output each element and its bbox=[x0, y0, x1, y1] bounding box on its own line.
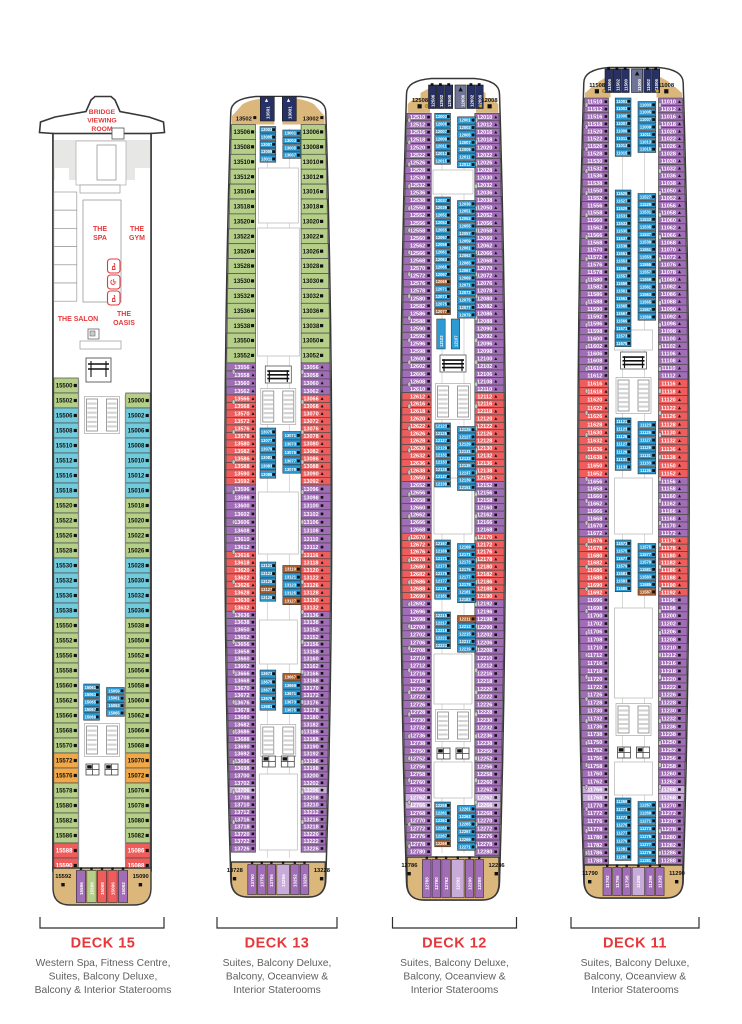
svg-text:11252: 11252 bbox=[661, 748, 676, 754]
svg-text:11778: 11778 bbox=[587, 827, 602, 833]
svg-text:11587: 11587 bbox=[640, 589, 652, 594]
svg-text:15016: 15016 bbox=[128, 489, 145, 495]
svg-text:12628: 12628 bbox=[410, 439, 425, 445]
svg-text:13085: 13085 bbox=[261, 472, 273, 477]
svg-text:15061: 15061 bbox=[108, 696, 120, 701]
svg-text:15068: 15068 bbox=[128, 744, 145, 750]
svg-text:12127: 12127 bbox=[459, 434, 471, 439]
svg-text:13018: 13018 bbox=[303, 205, 320, 211]
svg-text:12202: 12202 bbox=[477, 633, 492, 639]
svg-text:13528: 13528 bbox=[234, 264, 251, 270]
svg-text:12182: 12182 bbox=[477, 572, 492, 578]
svg-text:11056: 11056 bbox=[661, 203, 676, 209]
svg-text:12160: 12160 bbox=[477, 505, 492, 511]
svg-text:11796: 11796 bbox=[615, 875, 620, 888]
svg-text:11068: 11068 bbox=[661, 240, 676, 246]
svg-text:12722: 12722 bbox=[410, 695, 425, 701]
svg-text:11790: 11790 bbox=[582, 871, 598, 877]
svg-text:12020: 12020 bbox=[477, 145, 492, 151]
svg-text:11656: 11656 bbox=[587, 479, 602, 485]
svg-text:11628: 11628 bbox=[587, 422, 602, 428]
svg-text:11032: 11032 bbox=[661, 166, 676, 172]
svg-text:13568: 13568 bbox=[234, 404, 249, 410]
svg-text:13030: 13030 bbox=[303, 279, 320, 285]
svg-text:15056: 15056 bbox=[128, 669, 145, 675]
svg-text:13009: 13009 bbox=[261, 149, 273, 154]
svg-text:11522: 11522 bbox=[587, 137, 602, 143]
svg-text:12009: 12009 bbox=[436, 136, 448, 141]
svg-text:13728: 13728 bbox=[227, 868, 244, 874]
svg-text:12626: 12626 bbox=[410, 431, 425, 437]
svg-text:15036: 15036 bbox=[128, 609, 145, 615]
svg-text:13092: 13092 bbox=[303, 479, 318, 485]
svg-text:12532: 12532 bbox=[410, 183, 425, 189]
svg-text:11022: 11022 bbox=[661, 137, 676, 143]
svg-text:15086: 15086 bbox=[128, 849, 145, 855]
svg-text:11009: 11009 bbox=[616, 128, 628, 133]
svg-text:12780: 12780 bbox=[410, 850, 425, 856]
svg-text:12236: 12236 bbox=[477, 734, 492, 740]
svg-text:13666: 13666 bbox=[234, 671, 249, 677]
svg-text:12016: 12016 bbox=[477, 130, 492, 136]
svg-text:12012: 12012 bbox=[477, 123, 492, 129]
svg-text:15576: 15576 bbox=[56, 774, 73, 780]
svg-text:12170: 12170 bbox=[477, 535, 492, 541]
svg-text:THE: THE bbox=[117, 311, 131, 318]
svg-text:12261: 12261 bbox=[459, 806, 471, 811]
svg-text:11561: 11561 bbox=[616, 288, 628, 293]
svg-text:12088: 12088 bbox=[477, 319, 492, 325]
svg-text:Balcony & Interior Staterooms: Balcony & Interior Staterooms bbox=[35, 985, 172, 996]
svg-text:11012: 11012 bbox=[661, 107, 676, 113]
svg-text:12213: 12213 bbox=[459, 624, 471, 629]
svg-text:11121: 11121 bbox=[616, 419, 628, 424]
svg-text:12057: 12057 bbox=[459, 231, 471, 236]
svg-text:13156: 13156 bbox=[303, 642, 318, 648]
svg-text:11123: 11123 bbox=[616, 427, 628, 432]
svg-text:11528: 11528 bbox=[587, 152, 602, 158]
svg-text:11002: 11002 bbox=[646, 78, 651, 91]
svg-text:13070: 13070 bbox=[303, 412, 318, 418]
svg-text:11162: 11162 bbox=[661, 502, 676, 508]
svg-text:12188: 12188 bbox=[477, 587, 492, 593]
svg-text:12133: 12133 bbox=[436, 460, 448, 465]
svg-text:13066: 13066 bbox=[303, 397, 318, 403]
svg-text:11202: 11202 bbox=[661, 622, 676, 628]
svg-text:11776: 11776 bbox=[587, 819, 602, 825]
svg-text:11120: 11120 bbox=[661, 398, 676, 404]
svg-text:13618: 13618 bbox=[234, 561, 249, 567]
svg-text:13626: 13626 bbox=[234, 583, 249, 589]
svg-text:11116: 11116 bbox=[661, 381, 675, 387]
svg-text:11527: 11527 bbox=[616, 198, 628, 203]
svg-text:13208: 13208 bbox=[303, 795, 318, 801]
svg-text:BRIDGE: BRIDGE bbox=[89, 109, 116, 116]
svg-text:11272: 11272 bbox=[661, 811, 676, 817]
svg-text:12516: 12516 bbox=[410, 130, 425, 136]
svg-text:12052: 12052 bbox=[477, 213, 492, 219]
svg-text:12752: 12752 bbox=[410, 757, 425, 763]
svg-text:15020: 15020 bbox=[128, 519, 145, 525]
svg-text:12102: 12102 bbox=[477, 364, 492, 370]
svg-text:11166: 11166 bbox=[661, 509, 676, 515]
svg-text:11070: 11070 bbox=[661, 248, 676, 254]
svg-text:11196: 11196 bbox=[661, 598, 676, 604]
svg-text:12252: 12252 bbox=[477, 757, 492, 763]
svg-text:11273: 11273 bbox=[616, 815, 628, 820]
svg-text:11168: 11168 bbox=[661, 516, 676, 522]
svg-text:11698: 11698 bbox=[587, 606, 602, 612]
svg-text:13198: 13198 bbox=[303, 766, 318, 772]
svg-text:13676: 13676 bbox=[234, 701, 249, 707]
svg-text:11131: 11131 bbox=[640, 453, 652, 458]
svg-text:13112: 13112 bbox=[304, 545, 319, 551]
svg-text:13681: 13681 bbox=[261, 704, 273, 709]
svg-text:13520: 13520 bbox=[234, 220, 251, 226]
svg-text:11090: 11090 bbox=[661, 307, 676, 313]
svg-text:11565: 11565 bbox=[616, 303, 628, 308]
svg-text:13088: 13088 bbox=[303, 464, 318, 470]
svg-text:11712: 11712 bbox=[587, 653, 602, 659]
svg-text:11276: 11276 bbox=[661, 819, 676, 825]
svg-text:12171: 12171 bbox=[436, 556, 448, 561]
svg-text:12596: 12596 bbox=[410, 342, 425, 348]
svg-text:12738: 12738 bbox=[410, 741, 425, 747]
svg-text:13056: 13056 bbox=[303, 365, 318, 371]
svg-text:12698: 12698 bbox=[410, 617, 425, 623]
svg-text:11533: 11533 bbox=[616, 221, 628, 226]
svg-text:12096: 12096 bbox=[477, 342, 492, 348]
svg-text:11577: 11577 bbox=[616, 556, 628, 561]
svg-text:13592: 13592 bbox=[234, 479, 249, 485]
svg-text:15072: 15072 bbox=[128, 774, 145, 780]
svg-text:13698: 13698 bbox=[234, 766, 249, 772]
svg-text:11228: 11228 bbox=[661, 701, 676, 707]
svg-text:11538: 11538 bbox=[587, 181, 602, 187]
svg-text:12792: 12792 bbox=[444, 877, 449, 890]
svg-text:12536: 12536 bbox=[410, 191, 425, 197]
svg-text:12071: 12071 bbox=[459, 283, 471, 288]
svg-text:11530: 11530 bbox=[587, 159, 602, 165]
svg-text:11500: 11500 bbox=[624, 78, 629, 91]
svg-text:13669: 13669 bbox=[285, 683, 297, 688]
svg-text:11782: 11782 bbox=[587, 843, 602, 849]
svg-text:12177: 12177 bbox=[436, 578, 448, 583]
svg-text:13126: 13126 bbox=[303, 583, 318, 589]
svg-text:13206: 13206 bbox=[303, 788, 318, 794]
svg-text:12058: 12058 bbox=[477, 228, 492, 234]
svg-text:15092: 15092 bbox=[121, 882, 126, 895]
svg-text:13677: 13677 bbox=[261, 688, 273, 693]
svg-text:13518: 13518 bbox=[234, 205, 251, 211]
svg-text:11277: 11277 bbox=[640, 842, 652, 847]
svg-text:13572: 13572 bbox=[234, 419, 249, 425]
svg-text:12578: 12578 bbox=[410, 289, 425, 295]
svg-text:13675: 13675 bbox=[261, 679, 273, 684]
svg-text:Balcony, Oceanview &: Balcony, Oceanview & bbox=[584, 972, 686, 983]
svg-text:12586: 12586 bbox=[410, 311, 425, 317]
svg-text:12075: 12075 bbox=[436, 301, 448, 306]
svg-text:12005: 12005 bbox=[459, 132, 471, 137]
svg-text:13007: 13007 bbox=[261, 142, 273, 147]
svg-text:15078: 15078 bbox=[128, 804, 145, 810]
svg-text:12069: 12069 bbox=[459, 275, 471, 280]
svg-text:12660: 12660 bbox=[410, 505, 425, 511]
svg-text:12668: 12668 bbox=[410, 528, 425, 534]
svg-text:11535: 11535 bbox=[640, 224, 652, 229]
svg-text:11758: 11758 bbox=[587, 764, 602, 770]
svg-text:11508: 11508 bbox=[589, 83, 606, 89]
svg-text:13558: 13558 bbox=[234, 373, 249, 379]
svg-text:15059: 15059 bbox=[108, 688, 120, 693]
svg-text:12090: 12090 bbox=[477, 327, 492, 333]
svg-text:15502: 15502 bbox=[56, 399, 73, 405]
svg-text:11226: 11226 bbox=[661, 693, 676, 699]
svg-text:15520: 15520 bbox=[56, 504, 73, 510]
svg-text:11030: 11030 bbox=[661, 159, 676, 165]
svg-text:13530: 13530 bbox=[234, 279, 251, 285]
svg-text:11577: 11577 bbox=[640, 552, 652, 557]
svg-text:11268: 11268 bbox=[661, 795, 676, 801]
svg-text:11726: 11726 bbox=[587, 693, 602, 699]
svg-text:11688: 11688 bbox=[587, 576, 602, 582]
svg-text:12576: 12576 bbox=[410, 281, 425, 287]
svg-text:11529: 11529 bbox=[616, 206, 628, 211]
svg-text:13077: 13077 bbox=[285, 458, 297, 463]
svg-text:11096: 11096 bbox=[661, 322, 676, 328]
svg-text:11236: 11236 bbox=[661, 724, 676, 730]
svg-text:11572: 11572 bbox=[587, 255, 602, 261]
svg-text:13130: 13130 bbox=[303, 598, 318, 604]
svg-text:11736: 11736 bbox=[587, 724, 602, 730]
svg-text:15012: 15012 bbox=[128, 474, 145, 480]
svg-text:13180: 13180 bbox=[303, 715, 318, 721]
svg-text:11588: 11588 bbox=[587, 300, 602, 306]
svg-text:12662: 12662 bbox=[410, 513, 425, 519]
svg-text:12762: 12762 bbox=[410, 796, 425, 802]
svg-text:12037: 12037 bbox=[436, 198, 448, 203]
svg-text:11122: 11122 bbox=[661, 406, 676, 412]
svg-text:11128: 11128 bbox=[661, 422, 676, 428]
svg-text:12015: 12015 bbox=[436, 159, 448, 164]
svg-text:13671: 13671 bbox=[285, 691, 297, 696]
svg-text:12118: 12118 bbox=[477, 409, 492, 415]
svg-text:13060: 13060 bbox=[303, 381, 318, 387]
svg-text:12208: 12208 bbox=[477, 648, 492, 654]
svg-text:12686: 12686 bbox=[410, 579, 425, 585]
svg-text:13726: 13726 bbox=[234, 847, 249, 853]
svg-text:12530: 12530 bbox=[410, 176, 425, 182]
svg-text:11518: 11518 bbox=[587, 122, 602, 128]
svg-text:13580: 13580 bbox=[234, 442, 249, 448]
svg-text:11275: 11275 bbox=[616, 823, 628, 828]
svg-text:11281: 11281 bbox=[640, 858, 652, 863]
svg-text:11622: 11622 bbox=[587, 406, 602, 412]
svg-text:12078: 12078 bbox=[477, 289, 492, 295]
svg-text:11270: 11270 bbox=[661, 803, 676, 809]
svg-text:11716: 11716 bbox=[587, 661, 602, 667]
svg-text:11160: 11160 bbox=[661, 494, 676, 500]
svg-text:15536: 15536 bbox=[56, 594, 73, 600]
svg-text:11582: 11582 bbox=[587, 285, 602, 291]
svg-text:13510: 13510 bbox=[234, 160, 251, 166]
svg-text:12708: 12708 bbox=[410, 648, 425, 654]
svg-text:13176: 13176 bbox=[303, 701, 318, 707]
svg-text:13252: 13252 bbox=[293, 874, 298, 887]
svg-text:12558: 12558 bbox=[410, 228, 425, 234]
svg-text:13168: 13168 bbox=[303, 679, 318, 685]
svg-text:13077: 13077 bbox=[261, 438, 273, 443]
svg-text:11127: 11127 bbox=[640, 438, 652, 443]
svg-text:11537: 11537 bbox=[616, 236, 628, 241]
svg-text:11573: 11573 bbox=[616, 333, 628, 338]
svg-text:11670: 11670 bbox=[587, 524, 602, 530]
svg-text:13132: 13132 bbox=[303, 606, 318, 612]
svg-text:11660: 11660 bbox=[587, 494, 602, 500]
svg-text:11662: 11662 bbox=[587, 502, 602, 508]
svg-text:12290: 12290 bbox=[467, 877, 472, 890]
svg-text:11126: 11126 bbox=[661, 414, 676, 420]
svg-text:13190: 13190 bbox=[303, 744, 318, 750]
svg-text:12181: 12181 bbox=[436, 593, 448, 598]
svg-text:13576: 13576 bbox=[234, 427, 249, 433]
svg-text:Interior Staterooms: Interior Staterooms bbox=[411, 985, 499, 996]
svg-text:15518: 15518 bbox=[56, 489, 73, 495]
svg-text:13116: 13116 bbox=[304, 553, 319, 559]
svg-text:13188: 13188 bbox=[303, 737, 318, 743]
svg-text:12038: 12038 bbox=[477, 198, 492, 204]
svg-text:12710: 12710 bbox=[410, 656, 425, 662]
svg-text:12215: 12215 bbox=[459, 631, 471, 636]
svg-text:11583: 11583 bbox=[616, 578, 628, 583]
svg-text:11008: 11008 bbox=[658, 83, 675, 89]
svg-text:12760: 12760 bbox=[410, 780, 425, 786]
svg-text:11559: 11559 bbox=[616, 281, 628, 286]
svg-text:12139: 12139 bbox=[459, 478, 471, 483]
svg-text:12100: 12100 bbox=[477, 357, 492, 363]
svg-text:Suites, Balcony Deluxe,: Suites, Balcony Deluxe, bbox=[400, 958, 509, 969]
svg-text:15098: 15098 bbox=[100, 882, 105, 895]
svg-text:12258: 12258 bbox=[477, 772, 492, 778]
svg-text:13512: 13512 bbox=[234, 175, 251, 181]
svg-text:11557: 11557 bbox=[640, 269, 652, 274]
svg-text:11569: 11569 bbox=[640, 314, 652, 319]
svg-text:13022: 13022 bbox=[303, 234, 320, 240]
svg-text:12059: 12059 bbox=[459, 238, 471, 243]
svg-text:11728: 11728 bbox=[587, 701, 602, 707]
svg-text:11198: 11198 bbox=[661, 606, 676, 612]
svg-text:12173: 12173 bbox=[459, 559, 471, 564]
svg-text:GYM: GYM bbox=[129, 235, 145, 242]
svg-text:13002: 13002 bbox=[303, 117, 319, 123]
svg-text:11571: 11571 bbox=[616, 326, 628, 331]
svg-text:12211: 12211 bbox=[459, 616, 471, 621]
svg-text:11557: 11557 bbox=[616, 273, 628, 278]
svg-text:12003: 12003 bbox=[436, 114, 448, 119]
svg-text:12562: 12562 bbox=[410, 243, 425, 249]
svg-text:11585: 11585 bbox=[616, 586, 628, 591]
svg-text:11788: 11788 bbox=[587, 859, 602, 865]
svg-text:12758: 12758 bbox=[410, 772, 425, 778]
svg-text:15000: 15000 bbox=[128, 399, 145, 405]
svg-text:12222: 12222 bbox=[477, 695, 492, 701]
svg-text:11210: 11210 bbox=[661, 645, 676, 651]
svg-text:11102: 11102 bbox=[661, 344, 676, 350]
svg-text:15592: 15592 bbox=[55, 874, 71, 880]
svg-text:12512: 12512 bbox=[410, 123, 425, 129]
svg-text:13152: 13152 bbox=[303, 635, 318, 641]
svg-text:11280: 11280 bbox=[661, 835, 676, 841]
svg-text:13538: 13538 bbox=[234, 324, 251, 330]
svg-text:12706: 12706 bbox=[410, 641, 425, 647]
svg-text:13620: 13620 bbox=[234, 568, 249, 574]
svg-text:13005: 13005 bbox=[285, 145, 297, 150]
svg-text:VIEWING: VIEWING bbox=[87, 118, 116, 125]
svg-text:11575: 11575 bbox=[640, 544, 652, 549]
svg-text:11539: 11539 bbox=[640, 239, 652, 244]
svg-text:11678: 11678 bbox=[587, 546, 602, 552]
svg-text:11531: 11531 bbox=[640, 209, 652, 214]
svg-text:13202: 13202 bbox=[303, 781, 318, 787]
svg-text:12718: 12718 bbox=[410, 679, 425, 685]
svg-text:11638: 11638 bbox=[587, 455, 602, 461]
svg-text:12610: 12610 bbox=[410, 387, 425, 393]
svg-text:15061: 15061 bbox=[85, 685, 97, 690]
svg-text:12750: 12750 bbox=[410, 749, 425, 755]
svg-text:13673: 13673 bbox=[285, 699, 297, 704]
svg-text:13119: 13119 bbox=[285, 567, 297, 572]
svg-text:11527: 11527 bbox=[640, 194, 652, 199]
svg-text:13612: 13612 bbox=[234, 545, 249, 551]
svg-text:12256: 12256 bbox=[477, 765, 492, 771]
svg-text:11586: 11586 bbox=[587, 292, 602, 298]
svg-text:11076: 11076 bbox=[661, 263, 676, 269]
svg-text:12612: 12612 bbox=[410, 394, 425, 400]
svg-text:11696: 11696 bbox=[587, 598, 602, 604]
svg-text:11250: 11250 bbox=[661, 740, 676, 746]
svg-text:12226: 12226 bbox=[477, 703, 492, 709]
svg-text:12276: 12276 bbox=[477, 834, 492, 840]
svg-text:15060: 15060 bbox=[128, 699, 145, 705]
svg-text:13001: 13001 bbox=[288, 106, 293, 119]
svg-text:12766: 12766 bbox=[410, 803, 425, 809]
svg-text:12510: 12510 bbox=[410, 115, 425, 121]
svg-text:13556: 13556 bbox=[234, 365, 249, 371]
svg-text:12131: 12131 bbox=[459, 449, 471, 454]
svg-text:13138: 13138 bbox=[303, 620, 318, 626]
svg-text:11526: 11526 bbox=[587, 144, 602, 150]
svg-text:11650: 11650 bbox=[587, 463, 602, 469]
svg-text:12770: 12770 bbox=[410, 819, 425, 825]
svg-text:13588: 13588 bbox=[234, 464, 249, 470]
svg-text:15062: 15062 bbox=[128, 714, 145, 720]
svg-text:13016: 13016 bbox=[303, 190, 320, 196]
svg-text:13652: 13652 bbox=[234, 635, 249, 641]
svg-text:12001: 12001 bbox=[459, 118, 471, 123]
svg-text:12039: 12039 bbox=[459, 201, 471, 206]
svg-text:Interior Staterooms: Interior Staterooms bbox=[591, 985, 679, 996]
svg-text:12232: 12232 bbox=[477, 726, 492, 732]
svg-text:11132: 11132 bbox=[661, 439, 676, 445]
svg-text:13007: 13007 bbox=[285, 153, 297, 158]
svg-text:13072: 13072 bbox=[303, 419, 318, 425]
svg-text:11569: 11569 bbox=[616, 318, 628, 323]
svg-text:11708: 11708 bbox=[587, 637, 602, 643]
svg-text:11579: 11579 bbox=[640, 559, 652, 564]
svg-text:15069: 15069 bbox=[85, 714, 97, 719]
svg-text:11556: 11556 bbox=[587, 203, 602, 209]
svg-text:12073: 12073 bbox=[459, 290, 471, 295]
